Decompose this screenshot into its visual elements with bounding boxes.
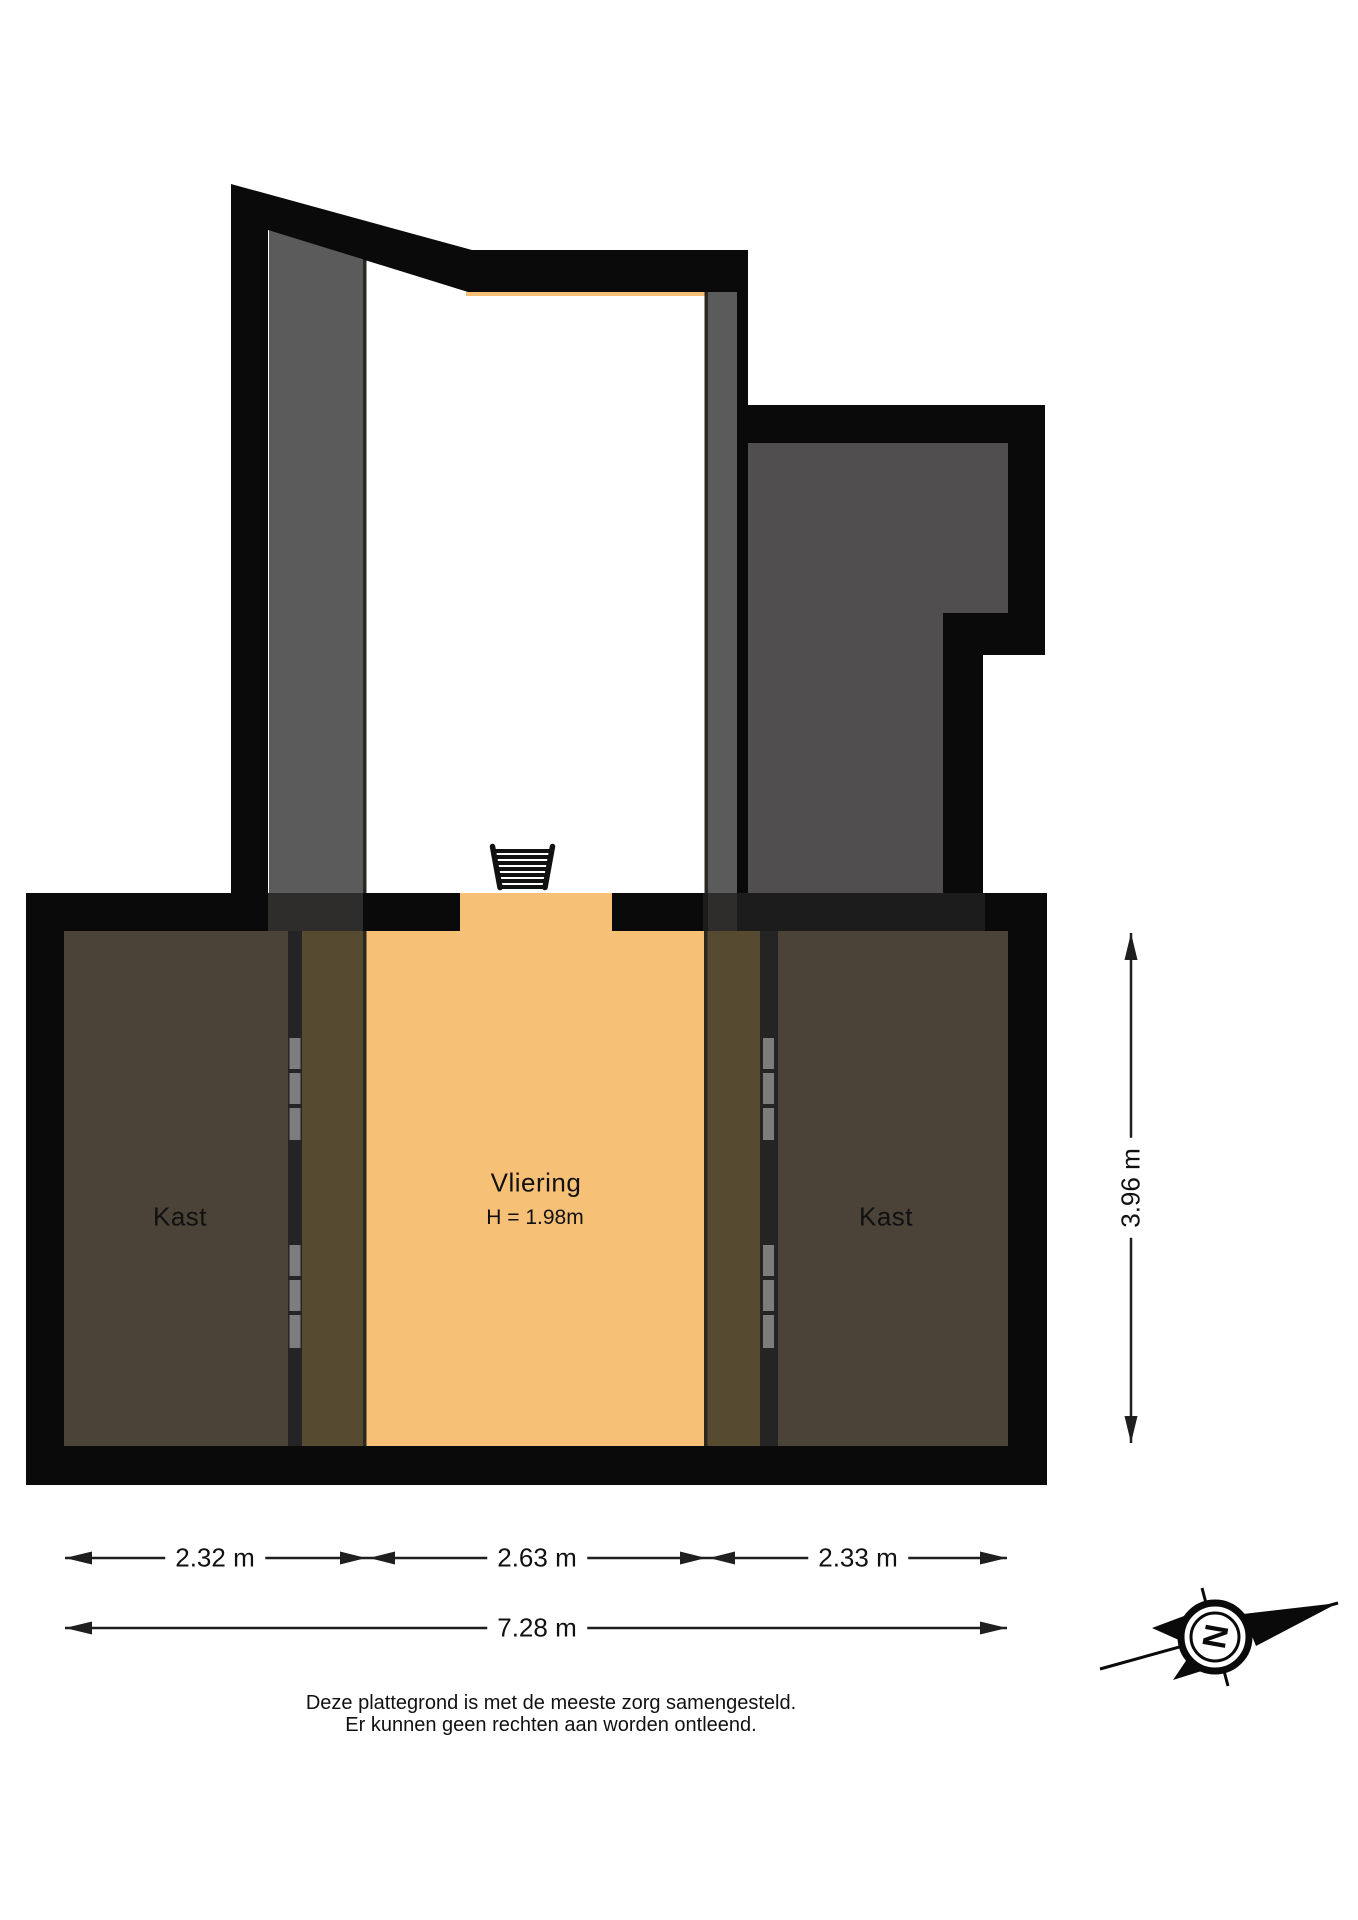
dim-width-segment-1: 2.32 m bbox=[165, 1543, 265, 1574]
greyroom-step-side-wall bbox=[943, 613, 983, 893]
band-over-wall-right bbox=[708, 893, 737, 931]
lowheight-strip-right bbox=[708, 931, 761, 1446]
dim-width-segment-2: 2.63 m bbox=[487, 1543, 587, 1574]
headroom-line-right-lower bbox=[704, 931, 708, 1446]
door-wall-left bbox=[288, 931, 302, 1446]
dim-width-total: 7.28 m bbox=[487, 1613, 587, 1644]
dim-height-total: 3.96 m bbox=[1116, 1138, 1147, 1238]
lowheight-strip-left bbox=[302, 931, 363, 1446]
floorplan-drawing bbox=[0, 0, 1358, 1920]
door-wall-right bbox=[760, 931, 778, 1446]
main-top-wall-tint bbox=[703, 893, 985, 931]
slope-band-left bbox=[269, 230, 363, 893]
ladder-icon bbox=[488, 843, 557, 890]
upper-room-floor-edge bbox=[466, 292, 737, 296]
disclaimer-text: Deze plattegrond is met de meeste zorg s… bbox=[306, 1692, 796, 1736]
headroom-line-left-lower bbox=[363, 931, 367, 1446]
greyroom-top-wall bbox=[737, 405, 1045, 443]
headroom-line-left-upper bbox=[363, 258, 367, 893]
vliering-height-label: H = 1.98m bbox=[486, 1206, 583, 1230]
disclaimer-line-1: Deze plattegrond is met de meeste zorg s… bbox=[306, 1692, 796, 1714]
disclaimer-line-2: Er kunnen geen rechten aan worden ontlee… bbox=[306, 1714, 796, 1736]
wall-upper-right bbox=[737, 292, 748, 893]
headroom-line-right-upper bbox=[705, 292, 709, 893]
stair-opening bbox=[460, 893, 612, 931]
dim-width-segment-3: 2.33 m bbox=[808, 1543, 908, 1574]
vliering-label: Vliering bbox=[491, 1168, 582, 1199]
kast-left-label: Kast bbox=[153, 1202, 207, 1233]
kast-left-floor bbox=[64, 931, 288, 1446]
kast-right-floor bbox=[778, 931, 1008, 1446]
band-over-wall-left bbox=[268, 893, 363, 931]
floorplan-canvas: Vliering H = 1.98m Kast Kast 2.32 m 2.63… bbox=[0, 0, 1358, 1920]
kast-right-label: Kast bbox=[859, 1202, 913, 1233]
slope-band-right bbox=[708, 292, 737, 893]
